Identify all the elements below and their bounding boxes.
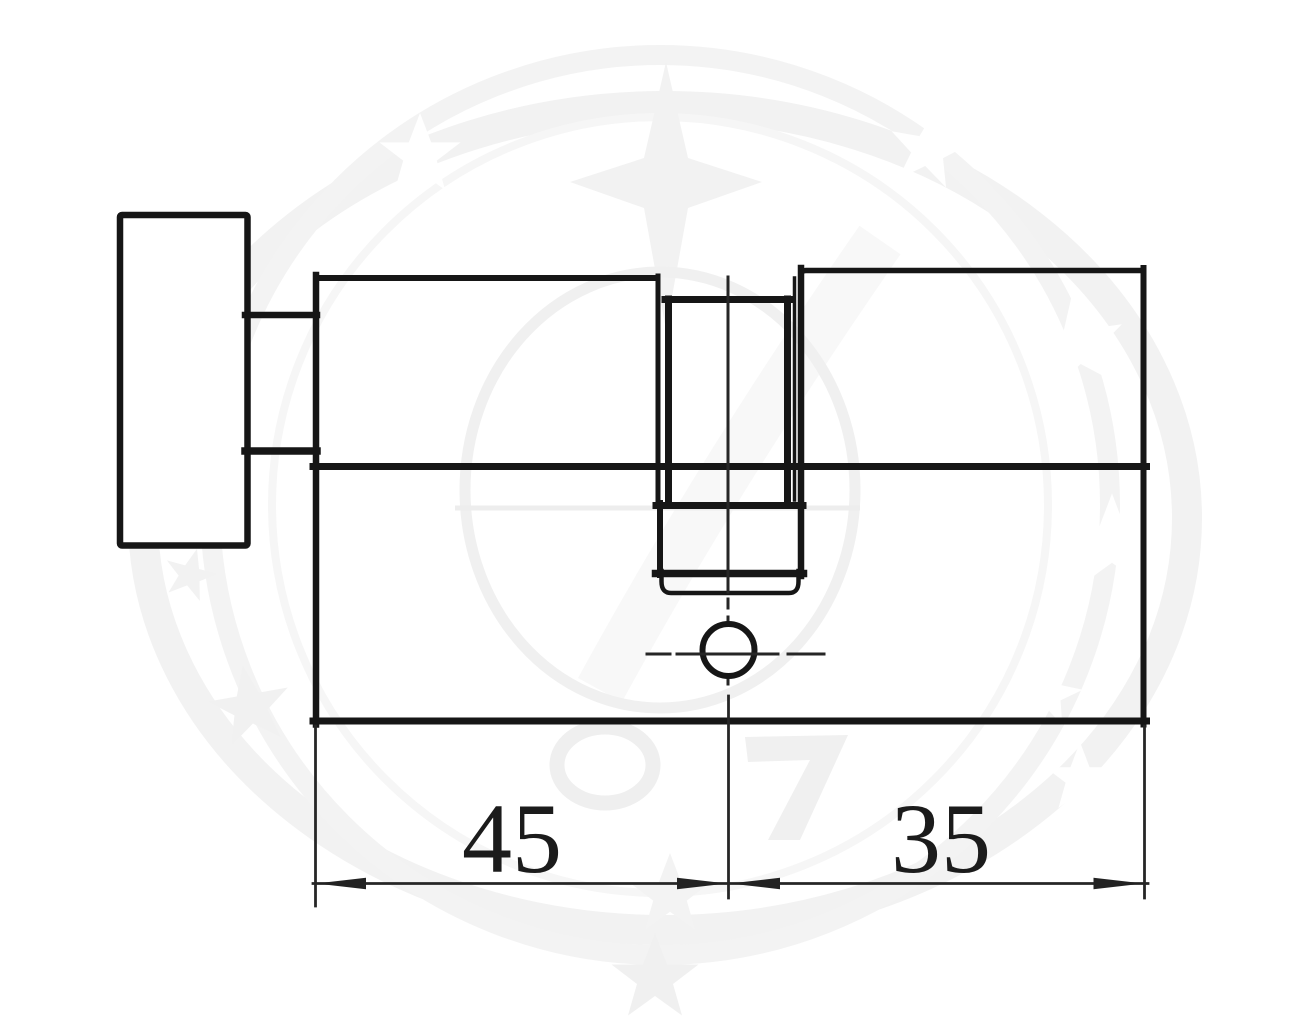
svg-text:45: 45 <box>462 783 562 894</box>
svg-text:35: 35 <box>891 783 991 894</box>
